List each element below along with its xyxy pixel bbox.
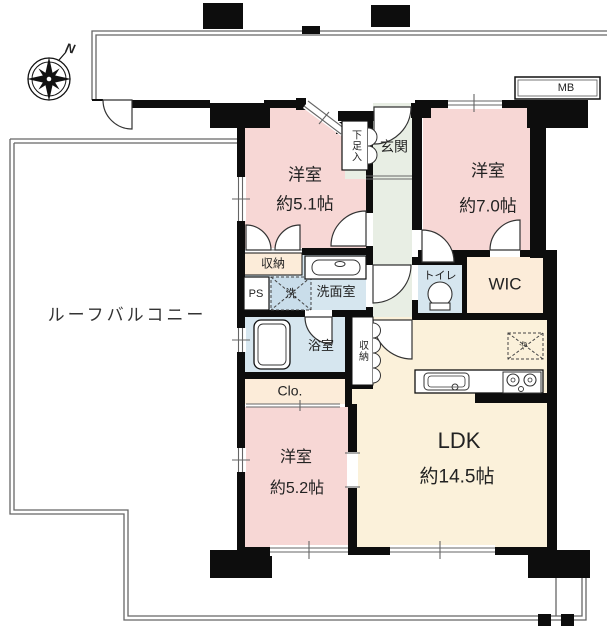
washroom-sink [305,256,366,279]
toilet-bowl [428,282,452,310]
compass-icon [27,52,71,101]
pipe-shaft-box [244,277,269,310]
kitchen-counter [415,370,543,393]
floorplan-drawing [0,0,607,640]
hallway-storage-box [352,317,381,385]
bathtub [254,320,290,369]
meter-box [515,77,600,99]
floor-plan: ルーフバルコニー 洋室 約5.1帖 洋室 約7.0帖 洋室 約5.2帖 LDK … [0,0,607,640]
washer-space [271,277,311,310]
shoe-cabinet [342,121,377,170]
